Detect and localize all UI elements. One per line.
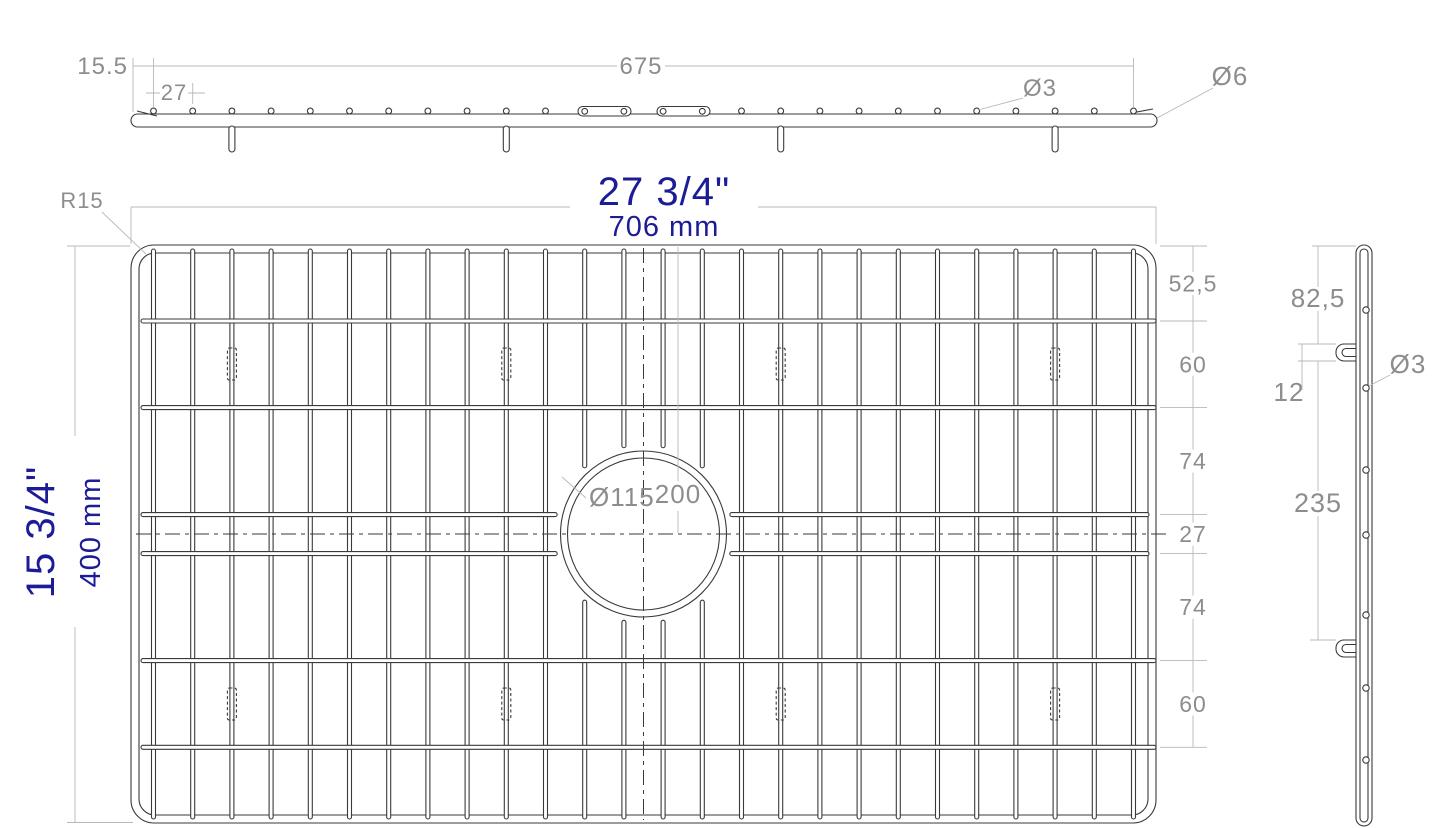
front-view xyxy=(131,245,1183,823)
width-mm-label: 706 mm xyxy=(609,211,720,243)
wire-dot xyxy=(386,108,392,114)
grid-wire-vertical xyxy=(700,249,704,468)
dim-text-span: 675 xyxy=(619,53,662,80)
top-view-foot xyxy=(503,126,509,152)
chain-dim-text: 74 xyxy=(1179,594,1207,620)
top-view-foot xyxy=(1052,126,1058,152)
chain-dim-text: 52,5 xyxy=(1169,271,1218,297)
height-inches-label: 15 3/4" xyxy=(19,466,63,598)
dim-text-wire-dia-top: Ø3 xyxy=(1023,75,1057,102)
top-view-foot xyxy=(778,126,784,152)
chain-dim-text: 27 xyxy=(1179,521,1207,547)
wire-dot xyxy=(268,108,274,114)
right-chain-lines xyxy=(1160,246,1207,747)
bump-end-dot xyxy=(621,108,627,114)
grid-wire-vertical xyxy=(622,249,626,448)
grid-wire-vertical xyxy=(857,249,861,819)
wire-dot xyxy=(1013,108,1019,114)
wire-dot xyxy=(307,108,313,114)
center-offset-label: 200 xyxy=(655,479,701,509)
top-view-foot xyxy=(229,126,235,152)
wire-dot xyxy=(1052,108,1058,114)
width-inches-label: 27 3/4" xyxy=(598,170,730,214)
drawing-svg: 15.5 675 27 Ø3 Ø6 xyxy=(0,0,1445,828)
bump-end-dot xyxy=(582,108,588,114)
grid-wire-vertical xyxy=(661,620,665,819)
top-bar-outline xyxy=(131,114,1157,127)
grid-wire-vertical xyxy=(583,249,587,468)
wire-dot xyxy=(464,108,470,114)
chain-dim-text: 60 xyxy=(1179,691,1207,717)
leader-corner-radius xyxy=(102,212,146,254)
side-foot-length-label: 12 xyxy=(1274,377,1305,407)
wire-dot xyxy=(503,108,509,114)
side-view xyxy=(1336,245,1372,826)
wire-dot xyxy=(1091,108,1097,114)
wire-dot xyxy=(425,108,431,114)
bump-end-dot xyxy=(660,108,666,114)
side-feet-spacing-label: 235 xyxy=(1294,488,1342,518)
grid-wire-horizontal xyxy=(141,319,1156,323)
side-wire-dot xyxy=(1363,757,1369,763)
top-view-wire-dots xyxy=(151,108,1137,114)
front-view-labels: 27 3/4" 706 mm 15 3/4" 400 mm R15 Ø115 2… xyxy=(19,170,1219,717)
wire-dot xyxy=(151,108,157,114)
wire-dot xyxy=(935,108,941,114)
dim-text-edge-offset: 15.5 xyxy=(77,53,128,80)
wire-dot xyxy=(229,108,235,114)
corner-radius-label: R15 xyxy=(60,188,103,213)
grid-wire-vertical xyxy=(152,249,156,819)
wire-dot xyxy=(778,108,784,114)
grid-wire-vertical xyxy=(740,249,744,819)
wire-dot xyxy=(739,108,745,114)
grid-wire-vertical xyxy=(700,600,704,819)
side-view-labels: 82,5 12 235 Ø3 xyxy=(1274,283,1427,518)
wire-dot xyxy=(856,108,862,114)
chain-dim-text: 60 xyxy=(1179,351,1207,377)
grid-wire-vertical xyxy=(818,249,822,819)
wire-dot xyxy=(817,108,823,114)
top-view xyxy=(131,107,1157,153)
grid-wire-horizontal xyxy=(730,552,1149,556)
grid-wire-vertical xyxy=(583,600,587,819)
grid-wire-vertical xyxy=(936,249,940,819)
wire-dot xyxy=(974,108,980,114)
grid-wire-horizontal xyxy=(141,513,557,517)
grid-wire-horizontal xyxy=(730,513,1149,517)
top-view-feet xyxy=(229,126,1058,152)
wire-dot xyxy=(1131,108,1137,114)
side-wire-dot xyxy=(1363,685,1369,691)
side-wire-dia-label: Ø3 xyxy=(1390,349,1427,379)
wire-dot xyxy=(190,108,196,114)
side-wire-dot xyxy=(1363,307,1369,313)
center-hole-dia-label: Ø115 xyxy=(589,482,655,512)
wire-dot xyxy=(543,108,549,114)
grid-wire-horizontal xyxy=(141,406,1156,410)
chain-dim-text: 74 xyxy=(1179,448,1207,474)
wire-dot xyxy=(895,108,901,114)
height-mm-label: 400 mm xyxy=(75,477,107,588)
side-top-offset-label: 82,5 xyxy=(1291,283,1346,313)
side-wire-dot xyxy=(1363,532,1369,538)
grid-wire-horizontal xyxy=(141,745,1156,749)
technical-drawing: 15.5 675 27 Ø3 Ø6 xyxy=(0,0,1445,828)
dim-text-wire-pitch: 27 xyxy=(161,80,187,105)
grid-wire-vertical xyxy=(661,249,665,448)
dim-text-frame-dia: Ø6 xyxy=(1212,61,1249,91)
grid-wire-horizontal xyxy=(141,552,557,556)
wire-dot xyxy=(347,108,353,114)
bump-end-dot xyxy=(699,108,705,114)
side-wire-dot xyxy=(1363,385,1369,391)
side-wire-dot xyxy=(1363,467,1369,473)
grid-wire-horizontal xyxy=(141,659,1156,663)
leader-dia6-top xyxy=(1157,88,1213,118)
side-wire-dot xyxy=(1363,612,1369,618)
grid-wire-vertical xyxy=(622,620,626,819)
